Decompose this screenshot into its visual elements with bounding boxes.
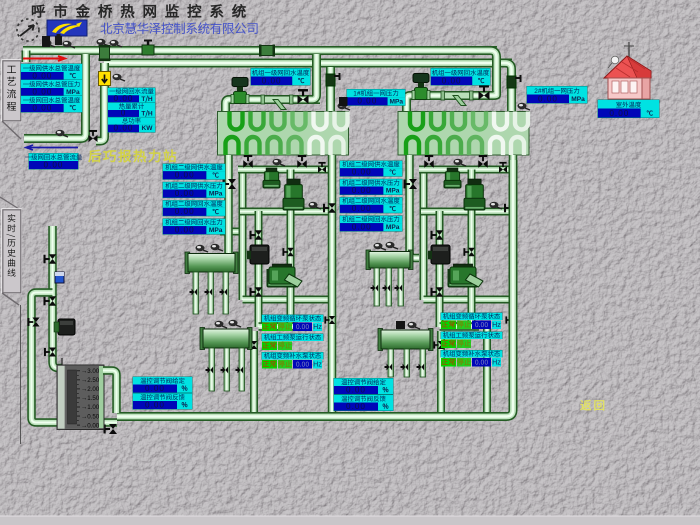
svg-text:→2.50: →2.50 (81, 377, 100, 384)
svg-text:0.00: 0.00 (296, 321, 309, 331)
svg-text:0.00: 0.00 (538, 94, 558, 103)
svg-text:0.00: 0.00 (442, 76, 462, 85)
svg-text:MPa: MPa (386, 221, 400, 231)
svg-text:实时/历史曲线: 实时/历史曲线 (5, 214, 18, 278)
svg-text:→0.00: →0.00 (81, 422, 100, 429)
svg-text:→1.50: →1.50 (81, 395, 100, 402)
svg-text:0.00: 0.00 (175, 171, 195, 180)
svg-text:0.00: 0.00 (175, 207, 195, 216)
svg-text:0.00: 0.00 (44, 160, 64, 169)
svg-text:Hz: Hz (492, 320, 501, 330)
svg-text:北京慧华泽控制系统有限公司: 北京慧华泽控制系统有限公司 (100, 18, 259, 37)
svg-text:正常: 正常 (262, 341, 276, 351)
svg-text:KW: KW (142, 122, 154, 132)
svg-text:后巧报热力站: 后巧报热力站 (88, 145, 178, 165)
svg-text:Hz: Hz (313, 359, 322, 369)
svg-text:停止: 停止 (278, 341, 292, 351)
svg-text:0.00: 0.00 (262, 76, 282, 85)
svg-text:%: % (382, 401, 388, 411)
svg-text:正常: 正常 (262, 322, 276, 332)
svg-text:℃: ℃ (212, 169, 219, 179)
svg-text:MPa: MPa (390, 95, 404, 105)
svg-text:℃: ℃ (647, 108, 654, 118)
svg-text:停止: 停止 (278, 359, 292, 369)
svg-text:正常: 正常 (262, 359, 276, 369)
svg-text:0.00: 0.00 (352, 168, 372, 177)
svg-text:0.00: 0.00 (357, 97, 377, 106)
svg-text:%: % (382, 384, 388, 394)
svg-text:0.00: 0.00 (175, 225, 195, 234)
svg-text:MPa: MPa (209, 224, 223, 234)
svg-text:返回: 返回 (580, 398, 607, 414)
svg-text:0.00: 0.00 (352, 222, 372, 231)
svg-text:Hz: Hz (492, 357, 501, 367)
svg-text:正常: 正常 (441, 320, 455, 330)
svg-text:MPa: MPa (571, 93, 585, 103)
svg-text:室外温度: 室外温度 (616, 100, 642, 109)
svg-text:℃: ℃ (298, 75, 305, 85)
svg-text:MPa: MPa (386, 185, 400, 195)
svg-text:停止: 停止 (278, 322, 292, 332)
svg-text:停止: 停止 (457, 320, 471, 330)
svg-text:正常: 正常 (441, 339, 455, 349)
svg-text:0.00: 0.00 (32, 103, 52, 112)
svg-text:→0.50: →0.50 (81, 413, 100, 420)
svg-text:0.00: 0.00 (352, 204, 372, 213)
svg-text:0.00: 0.00 (346, 402, 366, 411)
svg-text:%: % (181, 399, 187, 409)
svg-text:0.00: 0.00 (296, 358, 309, 368)
svg-text:工艺流程: 工艺流程 (4, 64, 19, 114)
svg-text:0.00: 0.00 (352, 186, 372, 195)
svg-text:→3.00: →3.00 (81, 368, 100, 375)
svg-text:0.00: 0.00 (114, 123, 134, 132)
svg-text:正常: 正常 (441, 357, 455, 367)
svg-text:停止: 停止 (457, 357, 471, 367)
svg-text:停止: 停止 (457, 339, 471, 349)
svg-text:→2.00: →2.00 (81, 386, 100, 393)
svg-text:℃: ℃ (70, 102, 77, 112)
svg-text:→1.00: →1.00 (81, 404, 100, 411)
svg-text:Hz: Hz (313, 322, 322, 332)
svg-text:%: % (181, 383, 187, 393)
svg-text:0.00: 0.00 (609, 109, 629, 118)
svg-text:℃: ℃ (389, 166, 396, 176)
svg-text:MPa: MPa (209, 188, 223, 198)
svg-text:0.00: 0.00 (475, 356, 488, 366)
svg-text:0.00: 0.00 (175, 189, 195, 198)
svg-text:0.00: 0.00 (145, 400, 165, 409)
svg-text:T/H: T/H (141, 108, 153, 118)
svg-text:0.00: 0.00 (475, 319, 488, 329)
svg-text:℃: ℃ (212, 206, 219, 216)
svg-text:℃: ℃ (478, 75, 485, 85)
svg-text:℃: ℃ (389, 203, 396, 213)
